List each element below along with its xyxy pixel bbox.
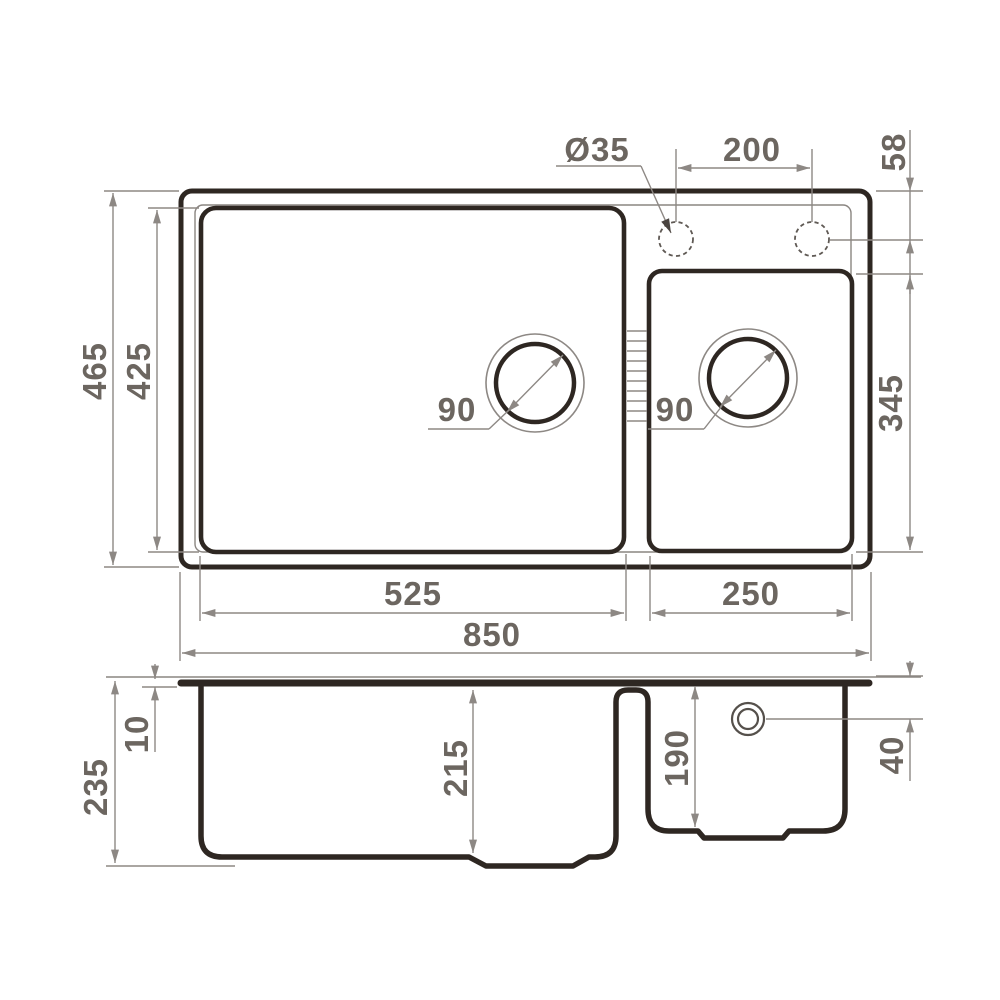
dim-main-bowl-depth: 425	[120, 208, 199, 552]
label-second-bowl-inner-depth: 190	[658, 729, 695, 787]
dim-faucet-offset: 58	[830, 130, 923, 294]
dim-overall-height: 235	[77, 681, 235, 866]
label-second-bowl-width: 250	[722, 575, 780, 612]
label-rim-thickness: 10	[118, 715, 155, 754]
overflow-hole-outer	[732, 703, 764, 735]
dim-main-bowl-inner-depth: 215	[437, 690, 474, 853]
label-second-drain: 90	[656, 391, 695, 428]
overflow-hole	[738, 709, 758, 729]
inner-rim-line	[195, 205, 851, 552]
label-overall-width: 850	[463, 616, 521, 653]
faucet-hole-left	[659, 222, 693, 256]
drawing-svg: 465 425 Ø35 200 58	[0, 0, 1000, 1000]
section-view: 235 10 215 190 40	[77, 661, 923, 866]
bowls-profile	[201, 686, 845, 866]
dim-second-bowl-depth: 345	[856, 274, 923, 552]
main-drain-diameter-arrow	[507, 355, 563, 412]
second-drain-diameter-arrow	[720, 350, 776, 407]
top-view: 465 425 Ø35 200 58	[76, 130, 923, 661]
label-overall-depth: 465	[76, 342, 113, 400]
faucet-hole-right	[795, 222, 829, 256]
dim-main-bowl-width: 525	[200, 554, 626, 621]
label-main-drain: 90	[438, 391, 477, 428]
outer-rim	[181, 191, 870, 567]
label-faucet-diameter: Ø35	[564, 131, 629, 168]
dim-second-bowl-width: 250	[650, 554, 852, 621]
label-main-bowl-inner-depth: 215	[437, 739, 474, 797]
label-faucet-offset: 58	[875, 133, 912, 172]
label-overall-height: 235	[77, 758, 114, 816]
label-main-bowl-depth: 425	[120, 342, 157, 400]
dim-second-bowl-inner-depth: 190	[658, 686, 695, 827]
sink-technical-drawing: 465 425 Ø35 200 58	[0, 0, 1000, 1000]
label-overflow-offset: 40	[873, 736, 910, 775]
dim-faucet-diameter: Ø35	[556, 131, 671, 233]
main-bowl	[201, 208, 624, 552]
label-second-bowl-depth: 345	[872, 374, 909, 432]
dim-faucet-spacing: 200	[676, 131, 812, 222]
divider-hatch	[627, 331, 647, 421]
label-main-bowl-width: 525	[384, 575, 442, 612]
label-faucet-spacing: 200	[723, 131, 781, 168]
